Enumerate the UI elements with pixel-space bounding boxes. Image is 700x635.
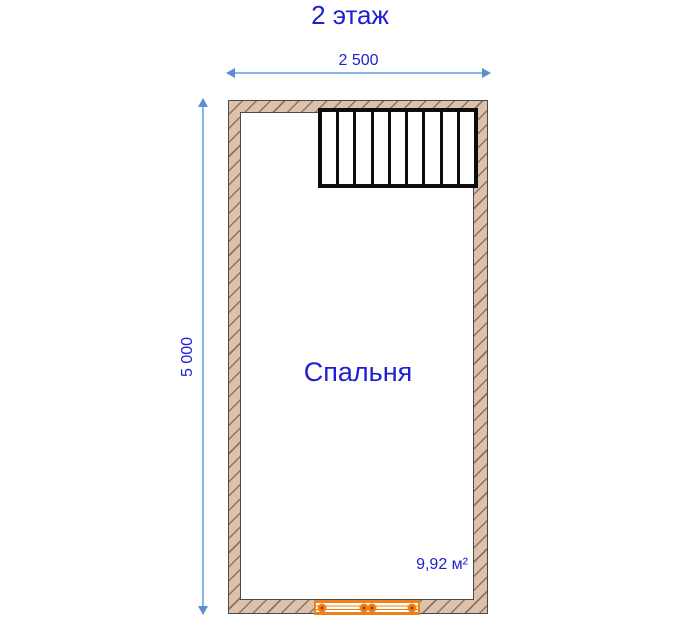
stair-step	[425, 112, 439, 184]
dimension-arrow-down-icon	[198, 606, 208, 615]
stair-step	[322, 112, 336, 184]
window-hinge-icon	[318, 603, 327, 612]
room-name-label: Спальня	[240, 357, 476, 388]
dimension-arrow-left-icon	[226, 68, 235, 78]
page-title: 2 этаж	[0, 1, 700, 29]
stair-step	[356, 112, 370, 184]
room-area-label: 9,92 м²	[330, 556, 468, 574]
floor-plan-canvas: 2 этаж 2 500 5 000 Спальня 9,92 м²	[0, 0, 700, 635]
window-symbol	[314, 600, 420, 615]
dimension-arrow-right-icon	[482, 68, 491, 78]
window-hinge-icon	[408, 603, 417, 612]
window-hinge-icon	[368, 603, 377, 612]
dimension-height-line	[202, 100, 204, 614]
stair-step	[391, 112, 405, 184]
dimension-width-line	[228, 72, 489, 74]
dimension-arrow-up-icon	[198, 98, 208, 107]
stair-step	[443, 112, 457, 184]
stair-step	[460, 112, 474, 184]
stair-step	[408, 112, 422, 184]
stair-step	[339, 112, 353, 184]
dimension-width-label: 2 500	[228, 52, 489, 70]
stair-step	[374, 112, 388, 184]
staircase-symbol	[318, 108, 478, 188]
